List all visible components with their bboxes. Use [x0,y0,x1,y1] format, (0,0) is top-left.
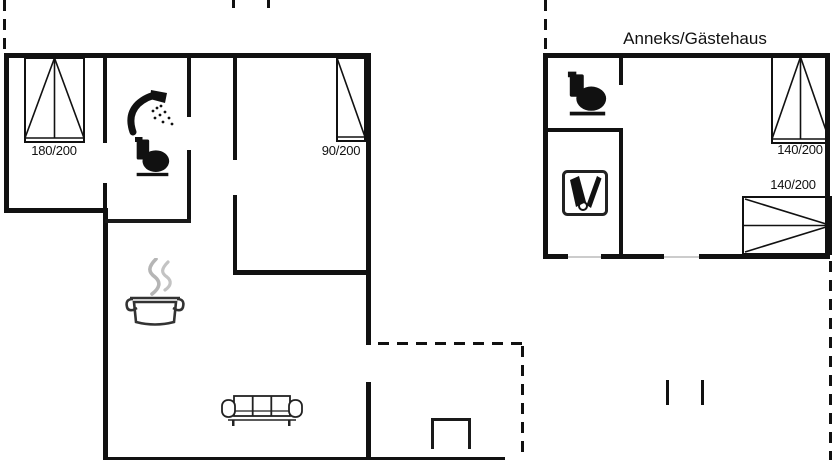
wall-midroom-bottom [233,270,371,275]
porch-niche-right [468,418,471,449]
terrace-tick-left [666,380,669,405]
bed-size-label: 140/200 [769,143,831,157]
wall-annex-wc-bottom [543,128,623,132]
wall-midroom-left-lower [233,195,237,273]
double-bed-symbol-140-vertical [771,56,830,145]
wall-bath-bottom [105,219,191,223]
double-bed-symbol-140-horizontal [742,196,832,256]
dashed-terrace-top [378,342,525,345]
annex-door-threshold-right [664,256,699,258]
annex-title: Anneks/Gästehaus [585,30,805,48]
dashed-boundary-right [829,261,832,460]
bed-size-label: 90/200 [315,144,367,158]
wall-bath-left-upper [103,57,107,143]
sauna-box-icon [561,169,609,217]
wall-main-right-lower [366,382,371,460]
bed-size-label: 140/200 [761,178,825,192]
sofa-icon [219,390,305,432]
single-bed-symbol-90 [336,57,367,143]
wall-annex-bottom-seg2 [601,254,664,259]
wall-annex-wc-right-lower [619,128,623,254]
dashed-terrace-side [521,346,524,460]
cooking-pot-icon [120,258,190,328]
annex-door-threshold-left [568,256,601,258]
top-tick-right [267,0,270,8]
floor-plan: 180/200 90/200 140/200 140/200 [0,0,834,460]
toilet-icon [567,71,608,117]
wall-main-left-upper [4,53,9,213]
wall-midroom-left-upper [233,57,237,160]
toilet-icon [131,137,174,177]
top-tick-left [232,0,235,8]
wall-annex-wc-right-upper [619,57,623,85]
wall-main-left-lower [103,208,108,460]
shower-icon [124,88,174,138]
dashed-boundary-left [3,0,6,53]
double-bed-symbol-180 [24,57,85,144]
wall-annex-left [543,53,548,259]
porch-niche-left [431,418,434,449]
terrace-tick-right [701,380,704,405]
dashed-boundary-annex-top [544,0,547,51]
wall-bath-right-lower [187,150,191,222]
porch-niche-top [431,418,471,421]
wall-bedroom-bottom [4,208,107,213]
wall-annex-bottom-seg1 [543,254,568,259]
wall-bath-left-lower [103,183,107,210]
bed-size-label: 180/200 [22,144,86,158]
wall-bath-right-upper [187,57,191,117]
